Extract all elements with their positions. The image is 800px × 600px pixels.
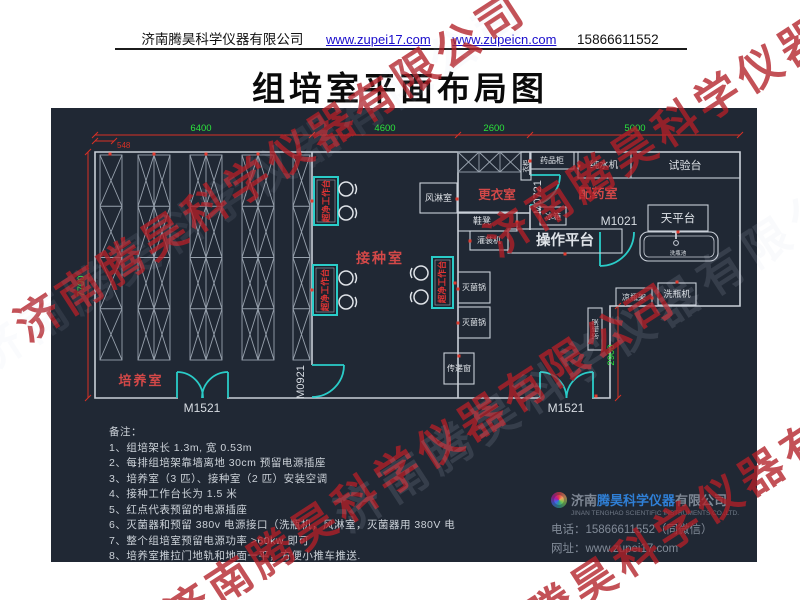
stool <box>414 266 428 280</box>
dim-2900: 2900 <box>606 344 617 365</box>
brand-english: JINAN TENGHAO SCIENTIFIC INSTRUMENTS CO.… <box>571 510 751 517</box>
test-bench-label: 试验台 <box>669 158 702 172</box>
dim-4600: 4600 <box>374 123 395 134</box>
door-label-m0921: M0921 <box>295 365 307 399</box>
brand-web-value[interactable]: www.zupei17.com <box>586 543 679 555</box>
power-outlet-dot <box>469 240 472 243</box>
clean-bench-label: 超净工作台 <box>321 179 331 223</box>
dim-7700: 7700 <box>76 275 87 296</box>
brand-name-pre: 济南 <box>571 493 597 508</box>
power-outlet-dot <box>595 395 598 398</box>
power-outlet-dot <box>539 216 542 219</box>
power-outlet-dot <box>311 289 314 292</box>
note-line: 4、接种工作台长为 1.5 米 <box>109 487 455 502</box>
stool <box>339 182 353 196</box>
note-line: 6、灭菌器和预留 380v 电源接口（洗瓶机，风淋室，灭菌器用 380V 电 <box>109 518 455 533</box>
stool <box>339 206 353 220</box>
shoe-bench-label: 鞋凳 <box>473 215 491 226</box>
power-outlet-dot <box>457 288 460 291</box>
header-phone: 15866611552 <box>577 32 659 47</box>
header: 济南腾昊科学仪器有限公司 www.zupei17.com www.zupeicn… <box>0 28 800 48</box>
dim-548: 548 <box>117 141 131 150</box>
fridge-label: 冰箱 <box>545 211 561 221</box>
room-label-preparation: 配药室 <box>578 186 617 201</box>
power-outlet-dot <box>458 355 461 358</box>
sink-label: 洗瓶池 <box>670 249 687 257</box>
medicine-cabinet-label: 药品柜 <box>540 155 564 165</box>
note-line: 7、整个组培室预留电源功率 >60kw 即可 <box>109 534 455 549</box>
clean-bench-label: 超净工作台 <box>320 268 330 312</box>
brand-logo-icon <box>551 492 567 508</box>
brand-phone-value: 15866611552（同微信） <box>586 524 713 536</box>
dim-5000: 5000 <box>624 123 645 134</box>
header-link-zupeicn[interactable]: www.zupeicn.com <box>452 32 556 47</box>
note-line: 1、组培架长 1.3m, 宽 0.53m <box>109 441 455 456</box>
note-line: 5、红点代表预留的电源插座 <box>109 503 455 518</box>
room-label-inoculation: 接种室 <box>356 250 404 266</box>
power-outlet-dot <box>457 322 460 325</box>
stools <box>339 182 428 309</box>
door-label-m1521-right: M1521 <box>548 401 585 415</box>
stool <box>339 271 353 285</box>
door-m0921 <box>312 365 344 397</box>
brand-name: 济南腾昊科学仪器有限公司 <box>571 490 727 509</box>
power-outlet-dot <box>677 231 680 234</box>
power-outlet-dot <box>578 165 581 168</box>
header-link-zupei17[interactable]: www.zupei17.com <box>326 32 431 47</box>
power-outlet-dot <box>516 221 519 224</box>
power-outlet-dot <box>257 153 260 156</box>
dim-6400: 6400 <box>190 123 211 134</box>
filler-label: 灌装机 <box>477 235 501 245</box>
water-purifier-label: 纯水机 <box>590 159 619 171</box>
walls <box>95 152 740 398</box>
brand-block: 济南腾昊科学仪器有限公司 JINAN TENGHAO SCIENTIFIC IN… <box>551 490 751 556</box>
notes: 备注： 1、组培架长 1.3m, 宽 0.53m 2、每排组培架靠墙离地 30c… <box>109 425 455 565</box>
brand-name-mid: 腾昊科学仪器 <box>597 493 675 508</box>
power-outlet-dot <box>311 200 314 203</box>
cool-rack-vertical-label: 凉瓶架 <box>591 319 600 340</box>
room-label-culture: 培养室 <box>118 373 163 388</box>
platform-label: 操作平台 <box>536 231 594 249</box>
outer-wall <box>95 152 740 398</box>
page-title: 组培室平面布局图 <box>0 62 800 110</box>
note-line: 2、每排组培架靠墙离地 30cm 预留电源插座 <box>109 456 455 471</box>
page: 济南腾昊科学仪器有限公司 www.zupei17.com www.zupeicn… <box>0 0 800 600</box>
clean-bench-label: 超净工作台 <box>437 260 447 304</box>
double-door-right <box>540 372 593 398</box>
note-line: 3、培养室（3 匹）、接种室（2 匹）安装空调 <box>109 472 455 487</box>
header-divider <box>115 48 687 50</box>
equipment-labels: 风淋室 灭菌锅 灭菌锅 传递窗 药品柜 衣柜 纯水机 试验台 鞋凳 灌装机 操作… <box>425 155 702 373</box>
power-outlet-dot <box>529 160 532 163</box>
brand-phone-label: 电话： <box>551 524 586 536</box>
header-company: 济南腾昊科学仪器有限公司 <box>141 32 303 47</box>
sterilizer-label: 灭菌锅 <box>462 282 486 292</box>
power-outlet-dot <box>651 297 654 300</box>
floor-plan: 6400 4600 2600 5000 548 7700 2900 <box>51 108 757 420</box>
stool <box>339 295 353 309</box>
door-label-m0721: M0721 <box>532 180 544 214</box>
power-outlet-dot <box>205 153 208 156</box>
balance-label: 天平台 <box>661 211 696 225</box>
dimensions: 6400 4600 2600 5000 548 7700 2900 <box>76 123 743 401</box>
bottle-washer-label: 洗瓶机 <box>663 288 690 299</box>
door-label-m1521-left: M1521 <box>184 401 221 415</box>
brand-name-post: 有限公司 <box>675 493 727 508</box>
room-label-changing: 更衣室 <box>478 187 516 202</box>
stool <box>414 290 428 304</box>
notes-title: 备注： <box>109 425 455 440</box>
double-door-left <box>177 372 228 398</box>
cad-panel: 6400 4600 2600 5000 548 7700 2900 <box>51 108 757 562</box>
power-outlet-dot <box>564 253 567 256</box>
power-outlet-dot <box>454 282 457 285</box>
note-line: 8、培养室推拉门地轨和地面一平，方便小推车推送. <box>109 549 455 564</box>
door-m1021 <box>600 232 634 266</box>
power-outlet-dot <box>109 153 112 156</box>
cool-rack-label: 凉瓶架 <box>622 292 646 302</box>
brand-web: 网址：www.zupei17.com <box>551 540 751 556</box>
air-shower-label: 风淋室 <box>425 192 452 203</box>
sterilizer-label: 灭菌锅 <box>462 317 486 327</box>
door-label-m1021: M1021 <box>601 214 638 228</box>
dim-2600: 2600 <box>483 123 504 134</box>
power-outlet-dot <box>676 281 679 284</box>
power-outlet-dot <box>153 153 156 156</box>
power-outlet-dot <box>456 198 459 201</box>
brand-web-label: 网址： <box>551 543 586 555</box>
brand-phone: 电话：15866611552（同微信） <box>551 521 751 537</box>
pass-window-label: 传递窗 <box>447 363 471 373</box>
power-outlet-dot <box>299 153 302 156</box>
